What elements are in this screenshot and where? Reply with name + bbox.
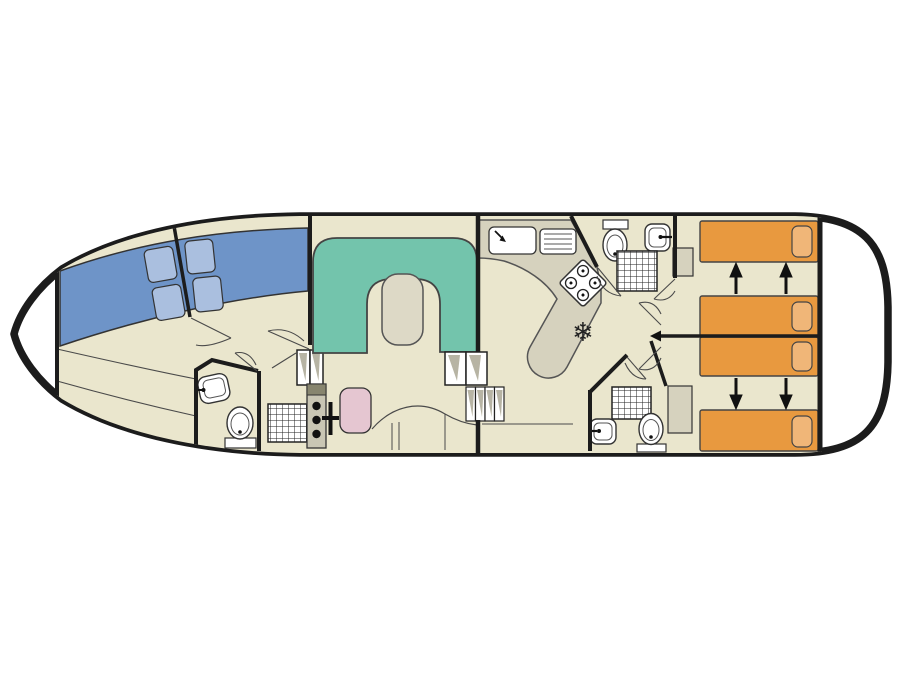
aft-pillow — [792, 226, 812, 257]
saloon-table — [382, 274, 423, 345]
wardrobe-bottom — [668, 386, 692, 433]
console-dial — [312, 430, 320, 438]
bottom-shower-tray — [612, 387, 651, 419]
helm-seat — [340, 388, 371, 433]
helm-console-top — [307, 384, 326, 395]
berth-pillow — [192, 276, 223, 313]
bottom-sink — [588, 419, 616, 444]
aft-pillow — [792, 342, 812, 371]
berth-pillow — [184, 239, 215, 275]
snowflake-icon: ❄ — [572, 318, 594, 348]
top-sink — [645, 224, 672, 251]
steering-wheel-bar — [322, 416, 339, 420]
aft-pillow — [792, 302, 812, 331]
boat-floorplan: ❄ — [0, 0, 901, 676]
bow-steps — [297, 350, 323, 385]
berth-pillow — [143, 246, 177, 284]
console-dial — [312, 402, 320, 410]
bow-shower-tray — [268, 404, 307, 442]
aft-pillow — [792, 416, 812, 447]
galley-sink — [489, 227, 576, 254]
berth-pillow — [151, 284, 185, 322]
top-shower-tray — [617, 251, 657, 291]
console-dial — [312, 416, 320, 424]
